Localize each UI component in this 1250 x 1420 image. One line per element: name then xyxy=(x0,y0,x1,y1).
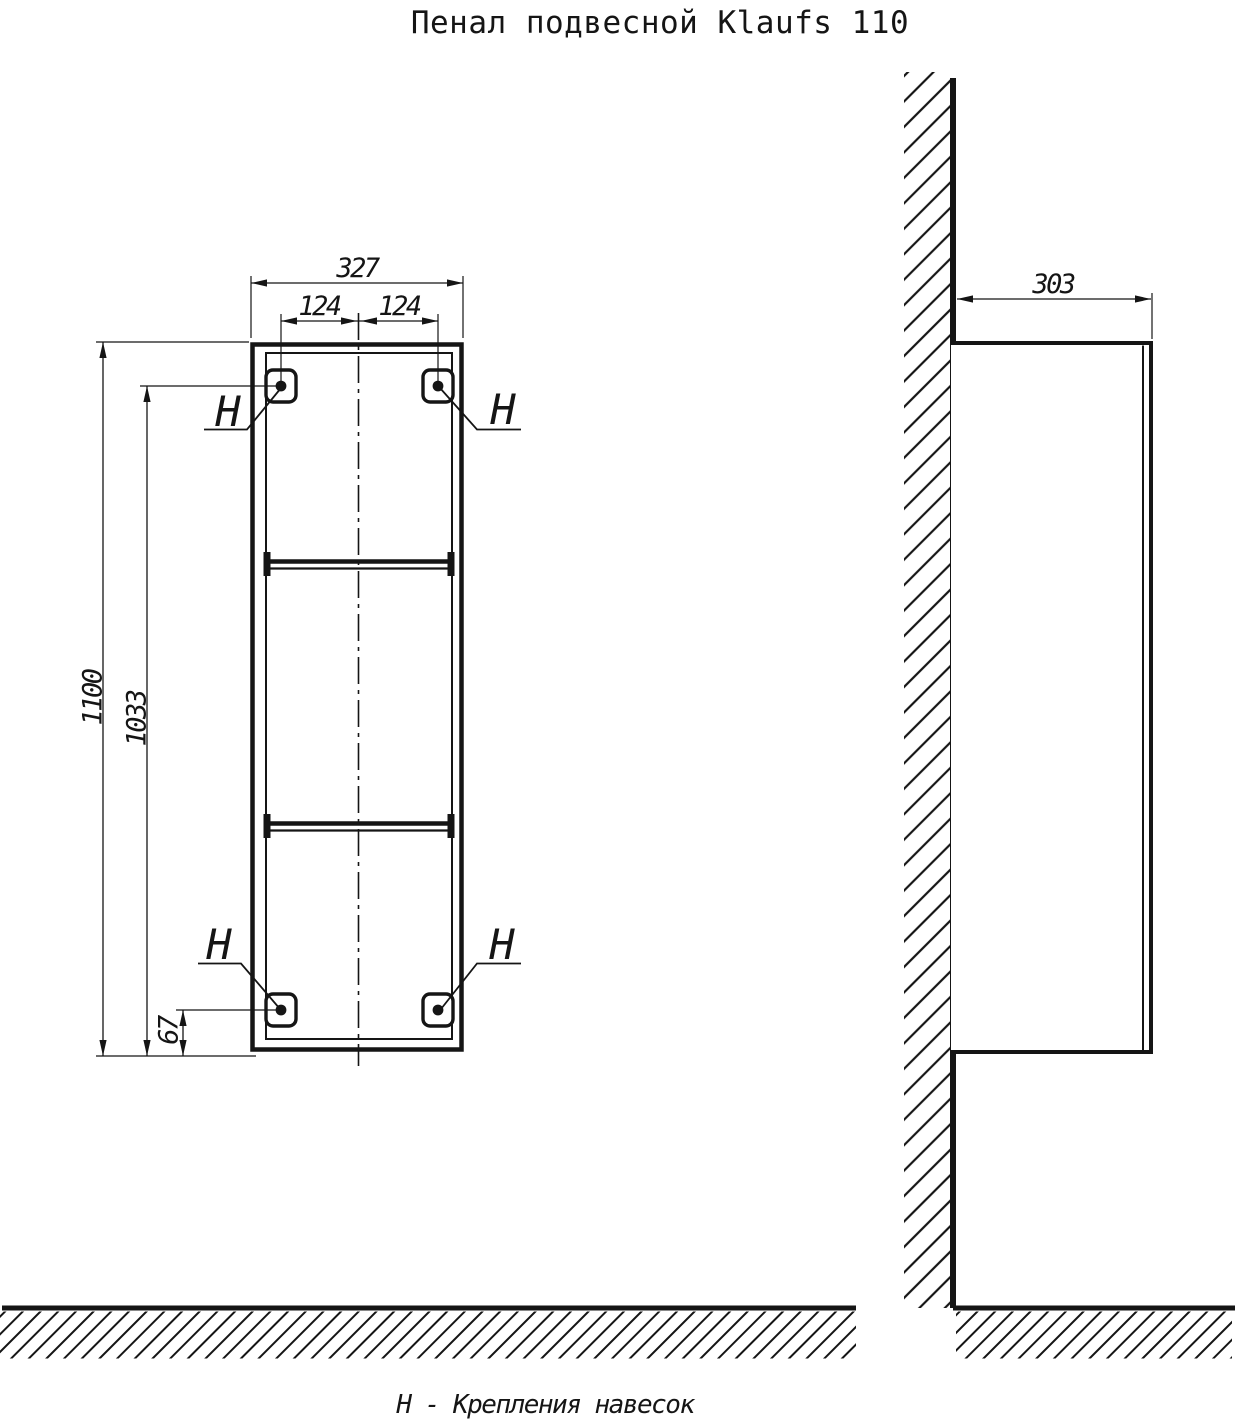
arrowhead xyxy=(143,386,150,402)
dim-hole-spacing-right-value: 124 xyxy=(378,291,421,322)
mounting-dot-bottom-right xyxy=(433,1005,444,1016)
cabinet-outline xyxy=(253,345,462,1050)
arrowhead xyxy=(99,342,106,358)
hook-label-top-right: Н xyxy=(489,385,516,434)
arrowhead xyxy=(341,317,357,324)
dim-width-value: 327 xyxy=(335,253,380,284)
side-cabinet-outline xyxy=(951,343,1151,1052)
arrowhead xyxy=(422,317,438,324)
arrowhead xyxy=(1135,295,1151,302)
arrowhead xyxy=(143,1040,150,1056)
shelf-lower-support-left xyxy=(264,814,271,838)
arrowhead xyxy=(281,317,297,324)
hook-label-bottom-left: Н xyxy=(205,920,232,969)
arrowhead xyxy=(99,1040,106,1056)
drawing-sheet: Пенал подвесной Klaufs 110 xyxy=(0,0,1250,1420)
wall-hatching xyxy=(904,72,950,1308)
floor-hatching-left xyxy=(0,1312,856,1359)
dim-height-value: 1100 xyxy=(78,669,109,725)
dim-hole-spacing-left-value: 124 xyxy=(298,291,341,322)
shelf-lower-support-right xyxy=(448,814,455,838)
arrowhead xyxy=(251,279,267,286)
drawing-svg: Пенал подвесной Klaufs 110 xyxy=(0,0,1250,1420)
side-view: 303 xyxy=(904,72,1152,1308)
dim-hole-height-value: 1033 xyxy=(122,690,153,746)
dim-depth-value: 303 xyxy=(1031,269,1075,300)
footnote-text: Н - Крепления навесок xyxy=(395,1390,695,1420)
dim-bottom-offset-value: 67 xyxy=(154,1015,185,1045)
hook-label-bottom-right: Н xyxy=(488,920,515,969)
arrowhead xyxy=(361,317,377,324)
shelf-upper-support-left xyxy=(264,552,271,576)
page-title: Пенал подвесной Klaufs 110 xyxy=(411,5,909,41)
hook-label-top-left: Н xyxy=(214,387,241,436)
floor-hatching-right xyxy=(956,1312,1232,1359)
shelf-upper-support-right xyxy=(448,552,455,576)
arrowhead xyxy=(447,279,463,286)
arrowhead xyxy=(957,295,973,302)
front-view xyxy=(253,313,462,1066)
dim-depth: 303 xyxy=(957,269,1152,339)
floor xyxy=(0,1308,1235,1359)
dim-width: 327 xyxy=(251,253,463,338)
